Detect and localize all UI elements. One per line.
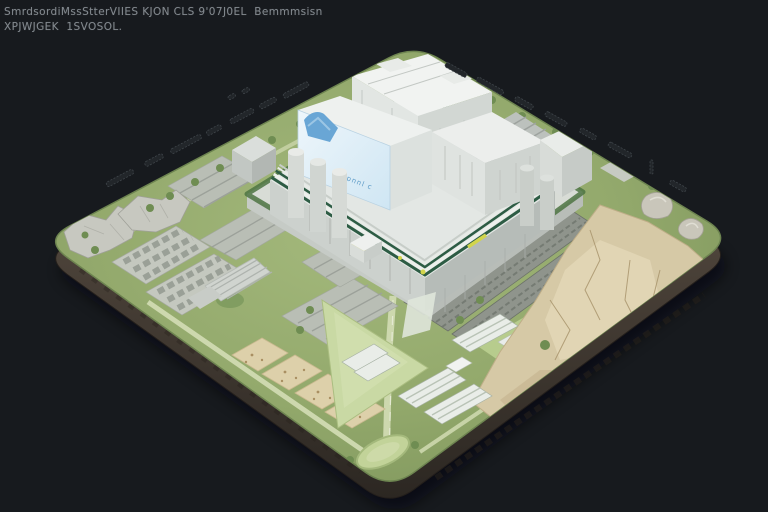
caption-line-1: SmrdsordiMssStterVIIES KJON CLS 9'07J0EL… <box>4 5 323 20</box>
site-map-canvas: pnnl c <box>0 0 768 512</box>
caption-line-2: XPJWJGEK 1SVOSOL. <box>4 20 323 35</box>
caption: SmrdsordiMssStterVIIES KJON CLS 9'07J0EL… <box>4 5 323 35</box>
isometric-site-map: pnnl c <box>0 0 768 512</box>
